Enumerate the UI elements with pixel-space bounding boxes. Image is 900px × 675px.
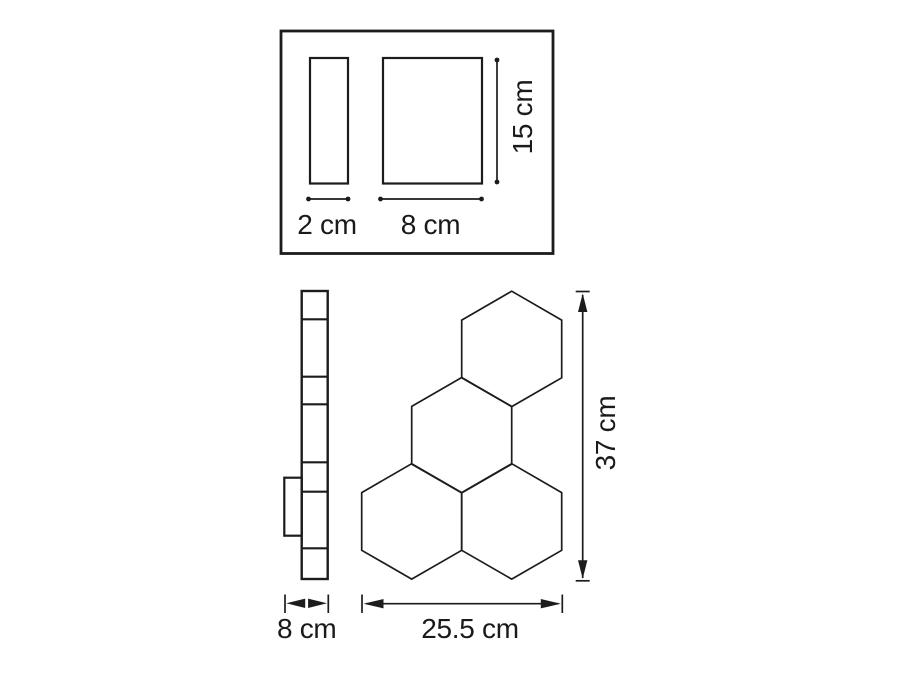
dim-arrowhead-up — [578, 294, 587, 313]
dim-dot-top — [495, 58, 500, 63]
hex-panel-middle — [412, 378, 512, 493]
label-wide-width-8cm: 8 cm — [401, 211, 460, 239]
hex-panel-bottom-right — [462, 464, 562, 579]
label-height-15cm: 15 cm — [509, 80, 537, 155]
dim-arrowhead-right — [541, 599, 561, 608]
dim-dot-right — [346, 197, 351, 202]
side-strip-outline — [302, 291, 328, 579]
width-2cm-dim-line — [306, 197, 350, 202]
hexagon-panel-cluster — [362, 291, 562, 579]
dim-arrowhead-left — [364, 599, 384, 608]
dim-dot-right — [479, 197, 484, 202]
dim-arrowhead-right — [308, 599, 327, 608]
height-15cm-dim-line — [495, 58, 500, 185]
height-37cm-dim — [576, 292, 590, 581]
dim-arrowhead-down — [578, 560, 587, 579]
wide-part-outline — [383, 58, 482, 184]
width-25-5cm-dim — [362, 595, 562, 614]
label-depth-8cm: 8 cm — [277, 615, 336, 643]
hex-panel-bottom-left — [362, 464, 462, 579]
lamp-side-view — [284, 291, 327, 579]
diagram-linework — [0, 0, 900, 675]
dim-arrowhead-left — [286, 599, 305, 608]
wall-mount-bracket-outline — [284, 478, 301, 536]
label-height-37cm: 37 cm — [592, 396, 620, 471]
dim-dot-left — [306, 197, 311, 202]
dim-dot-bottom — [495, 180, 500, 185]
label-width-25-5cm: 25.5 cm — [421, 615, 519, 643]
product-dimension-diagram: 2 cm 8 cm 15 cm 8 cm 25.5 cm 37 cm — [0, 0, 900, 675]
width-8cm-dim-line — [378, 197, 484, 202]
narrow-part-outline — [310, 58, 348, 184]
depth-8cm-dim — [285, 595, 328, 614]
dim-dot-left — [378, 197, 383, 202]
hex-panel-top — [462, 291, 562, 406]
label-narrow-width-2cm: 2 cm — [297, 211, 356, 239]
